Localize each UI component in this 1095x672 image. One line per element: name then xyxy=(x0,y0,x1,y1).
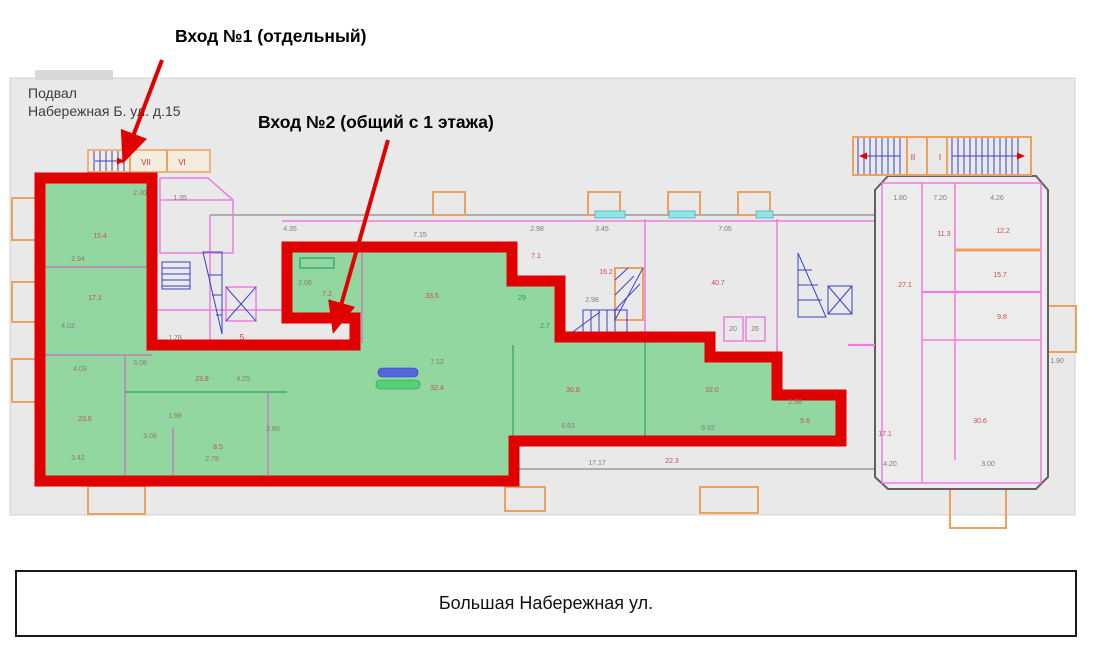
room-label: 17.1 xyxy=(88,295,102,302)
room-label: 11.3 xyxy=(937,231,950,238)
room-label: 20 xyxy=(729,326,737,333)
room-label: 1.78 xyxy=(168,335,182,342)
room-label: 3.42 xyxy=(71,455,85,462)
room-label: 30.8 xyxy=(566,387,580,394)
room-label: 2.98 xyxy=(530,226,544,233)
room-label: 32.0 xyxy=(705,387,719,394)
room-label: 27.1 xyxy=(898,282,912,289)
room-label: 1.98 xyxy=(168,413,182,420)
room-label: 16.2 xyxy=(599,269,613,276)
scan-artifact xyxy=(35,70,113,80)
room-label: 2.98 xyxy=(585,297,599,304)
room-label: 7.20 xyxy=(933,195,947,202)
room-label: 23.8 xyxy=(195,376,209,383)
room-label: 2.78 xyxy=(205,456,219,463)
room-label: 23.6 xyxy=(78,416,92,423)
room-label: 3.00 xyxy=(981,461,995,468)
blue-tag xyxy=(378,368,418,377)
room-label: 7.1 xyxy=(531,253,541,260)
room-label: 5.6 xyxy=(800,418,810,425)
room-label: 15.4 xyxy=(93,233,107,240)
room-label: II xyxy=(911,153,915,162)
room-label: 5 xyxy=(240,333,245,342)
room-label: 8.63 xyxy=(561,423,575,430)
room-label: 15.7 xyxy=(993,272,1007,279)
room-label: 1.35 xyxy=(173,195,187,202)
street-label: Большая Набережная ул. xyxy=(439,593,653,614)
room-label: 6.92 xyxy=(701,425,715,432)
street-label-box: Большая Набережная ул. xyxy=(15,570,1077,637)
room-label: 4.03 xyxy=(73,366,87,373)
room-label: 4.20 xyxy=(883,461,897,468)
room-label: 3.08 xyxy=(133,360,147,367)
room-label: 7.05 xyxy=(718,226,732,233)
room-label: 3.45 xyxy=(595,226,609,233)
room-label: 2.98 xyxy=(788,399,802,406)
room-label: VII xyxy=(141,158,151,167)
room-label: 33.5 xyxy=(425,293,439,300)
room-label: 1.90 xyxy=(1050,358,1064,365)
room-label: 17.17 xyxy=(588,460,606,467)
entrance-1-label: Вход №1 (отдельный) xyxy=(175,26,366,47)
room-label: 4.35 xyxy=(283,226,297,233)
room-label: 29 xyxy=(518,295,526,302)
room-label: 22.3 xyxy=(665,458,679,465)
room-label: 7.15 xyxy=(413,232,427,239)
room-label: 30.6 xyxy=(973,418,987,425)
entrance-2-label: Вход №2 (общий с 1 этажа) xyxy=(258,112,494,133)
room-label: 2.08 xyxy=(298,280,312,287)
room-label: 8.5 xyxy=(213,444,223,451)
room-label: 40.7 xyxy=(711,280,725,287)
room-label: 17.1 xyxy=(878,431,892,438)
room-label: 2.94 xyxy=(71,256,85,263)
room-label: 4.25 xyxy=(236,376,250,383)
room-label: 7.2 xyxy=(322,291,332,298)
room-label: 32.4 xyxy=(430,385,444,392)
room-label: 7.12 xyxy=(430,359,444,366)
room-label: 3.08 xyxy=(143,433,157,440)
plan-title-line2: Набережная Б. ул. д.15 xyxy=(28,103,181,119)
room-label: 9.8 xyxy=(997,314,1007,321)
room-label: 2.80 xyxy=(266,426,280,433)
room-label: VI xyxy=(178,158,186,167)
room-label: I xyxy=(939,153,941,162)
room-label: 2.30 xyxy=(133,190,147,197)
room-label: 26 xyxy=(751,326,759,333)
green-tag xyxy=(376,380,420,389)
room-label: 2.7 xyxy=(540,323,550,330)
room-label: 12.2 xyxy=(996,228,1010,235)
plan-title-line1: Подвал xyxy=(28,85,77,101)
room-label: 1.80 xyxy=(893,195,907,202)
screenshot-root: VIIVIIII52.301.354.357.152.983.457.051.8… xyxy=(0,0,1095,672)
room-label: 4.02 xyxy=(61,323,75,330)
room-label: 4.26 xyxy=(990,195,1004,202)
